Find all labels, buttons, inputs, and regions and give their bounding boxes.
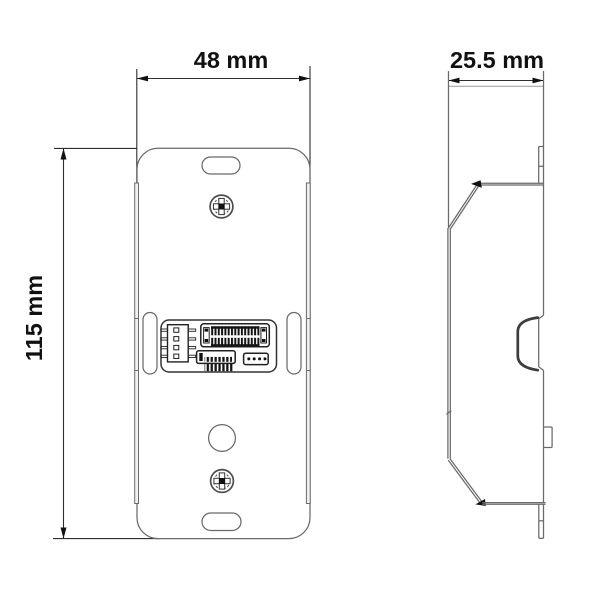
wiring-connector-panel [161,320,277,372]
cable-hole [209,425,236,452]
four-pin-socket [244,353,269,364]
arrowhead-top [61,148,67,159]
height-dimension-label: 115 mm [21,275,47,361]
top-screw [210,195,233,218]
width-dimension-label: 48 mm [194,47,268,73]
left-flange-strip [135,183,139,504]
fold-joint-mark-top [471,180,482,188]
bottom-tab [539,504,544,538]
top-mounting-slot [202,157,240,174]
front-view: 48 mm 115 mm [21,47,310,539]
arrowhead-bottom [61,528,67,539]
arrowhead-left [449,78,460,84]
spring-clip [518,318,538,371]
depth-dimension-label: 25.5 mm [450,47,544,73]
depth-dimension: 25.5 mm [449,47,545,83]
side-latch-tab [544,427,553,448]
height-dimension: 115 mm [21,148,160,538]
bracket-fold-lines [539,147,544,184]
left-slot [143,313,157,375]
arrowhead-left [137,76,148,82]
width-dimension: 48 mm [137,47,310,183]
side-view: 25.5 mm [446,47,552,538]
board-connector [201,324,269,347]
dimension-drawing: 48 mm 115 mm [0,0,600,600]
technical-drawing-canvas: 48 mm 115 mm [0,0,600,600]
side-profile-outline [446,71,552,538]
right-flange-strip [306,183,310,504]
bottom-screw [211,470,234,493]
arrowhead-right [533,78,544,84]
right-slot [287,313,301,375]
arrowhead-right [299,76,310,82]
bottom-mounting-slot [202,513,241,531]
